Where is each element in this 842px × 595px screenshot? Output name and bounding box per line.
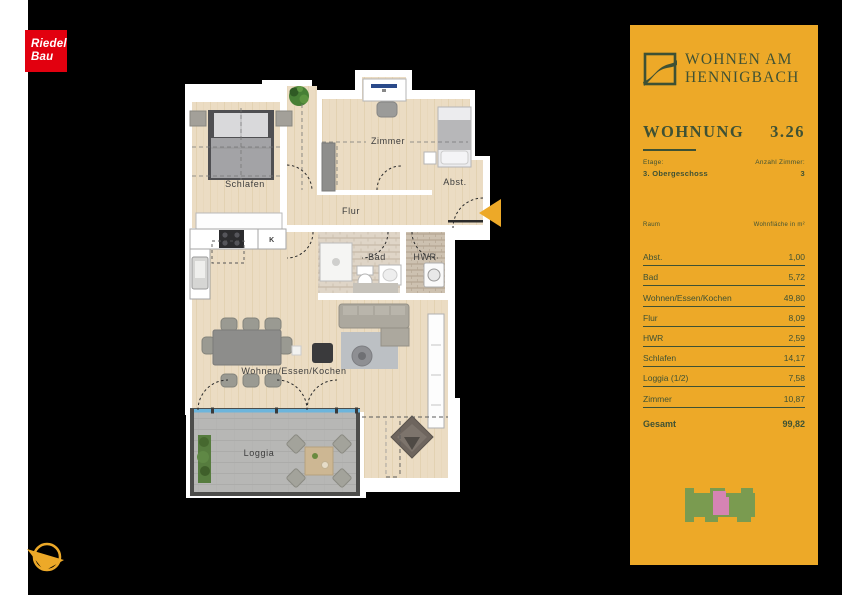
- project-brand: WOHNEN AM HENNIGBACH: [643, 51, 799, 87]
- dresser: [196, 213, 282, 229]
- label-bad: Bad: [368, 252, 386, 262]
- row-area: 2,59: [788, 333, 805, 343]
- loggia-table: [305, 447, 333, 475]
- col-area: Wohnfläche in m²: [754, 222, 805, 228]
- total-label: Gesamt: [643, 419, 676, 429]
- hennigbach-logo-icon: [643, 52, 677, 86]
- row-room: Zimmer: [643, 394, 672, 404]
- col-room: Raum: [643, 222, 660, 228]
- row-room: Schlafen: [643, 353, 676, 363]
- loggia: [190, 408, 360, 497]
- row-room: Abst.: [643, 252, 662, 262]
- rooms-label: Anzahl Zimmer:: [755, 159, 805, 166]
- title-underline: [643, 149, 696, 151]
- brand-line1: WOHNEN AM: [685, 51, 799, 69]
- row-room: Bad: [643, 272, 658, 282]
- row-room: HWR: [643, 333, 663, 343]
- table-row: Bad 5,72: [643, 266, 805, 286]
- label-schlafen: Schlafen: [225, 179, 265, 189]
- label-abst: Abst.: [443, 177, 467, 187]
- vanity: [353, 283, 398, 293]
- table-row: Loggia (1/2) 7,58: [643, 367, 805, 387]
- row-area: 1,00: [788, 252, 805, 262]
- page: Riedel Bau: [0, 0, 842, 595]
- nightstand: [276, 111, 292, 126]
- row-room: Loggia (1/2): [643, 373, 688, 383]
- apartment-number: 3.26: [770, 122, 805, 142]
- label-loggia: Loggia: [244, 448, 275, 458]
- row-area: 49,80: [784, 293, 805, 303]
- row-area: 10,87: [784, 394, 805, 404]
- brand-line2: HENNIGBACH: [685, 69, 799, 87]
- label-hwr: HWR: [413, 252, 436, 262]
- armchair-dark: [312, 343, 333, 363]
- label-wohnen: Wohnen/Essen/Kochen: [241, 366, 346, 376]
- label-zimmer: Zimmer: [371, 136, 405, 146]
- row-area: 5,72: [788, 272, 805, 282]
- floor-label: Etage:: [643, 159, 664, 166]
- area-table: Raum Wohnfläche in m² Abst. 1,00 Bad 5,7…: [643, 222, 805, 429]
- floor-value: 3. Obergeschoss: [643, 169, 708, 178]
- dining-table: [213, 330, 281, 365]
- side-table: [424, 152, 436, 164]
- row-room: Flur: [643, 313, 658, 323]
- info-panel: WOHNEN AM HENNIGBACH WOHNUNG 3.26 Etage:…: [630, 25, 818, 565]
- row-room: Wohnen/Essen/Kochen: [643, 293, 732, 303]
- wardrobe: [322, 143, 335, 191]
- row-area: 7,58: [788, 373, 805, 383]
- table-row: Abst. 1,00: [643, 246, 805, 266]
- sideboard: [428, 314, 444, 428]
- building-footprint: [682, 485, 758, 527]
- corridor-plant: [289, 86, 309, 106]
- desk-chair: [377, 102, 397, 117]
- total-value: 99,82: [782, 419, 805, 429]
- label-kitchen-marker: K: [269, 237, 275, 244]
- table-row: Flur 8,09: [643, 307, 805, 327]
- table-row: Zimmer 10,87: [643, 387, 805, 407]
- nightstand: [190, 111, 206, 126]
- label-flur: Flur: [342, 206, 360, 216]
- rooms-value: 3: [801, 169, 805, 178]
- row-area: 8,09: [788, 313, 805, 323]
- table-total-row: Gesamt 99,82: [643, 408, 805, 429]
- table-row: HWR 2,59: [643, 327, 805, 347]
- table-row: Wohnen/Essen/Kochen 49,80: [643, 286, 805, 306]
- row-area: 14,17: [784, 353, 805, 363]
- table-row: Schlafen 14,17: [643, 347, 805, 367]
- apartment-title: WOHNUNG: [643, 122, 744, 142]
- stove: [219, 230, 244, 248]
- monitor: [371, 84, 397, 88]
- hwr-fixtures: [424, 263, 444, 287]
- north-arrow-icon: [27, 544, 64, 571]
